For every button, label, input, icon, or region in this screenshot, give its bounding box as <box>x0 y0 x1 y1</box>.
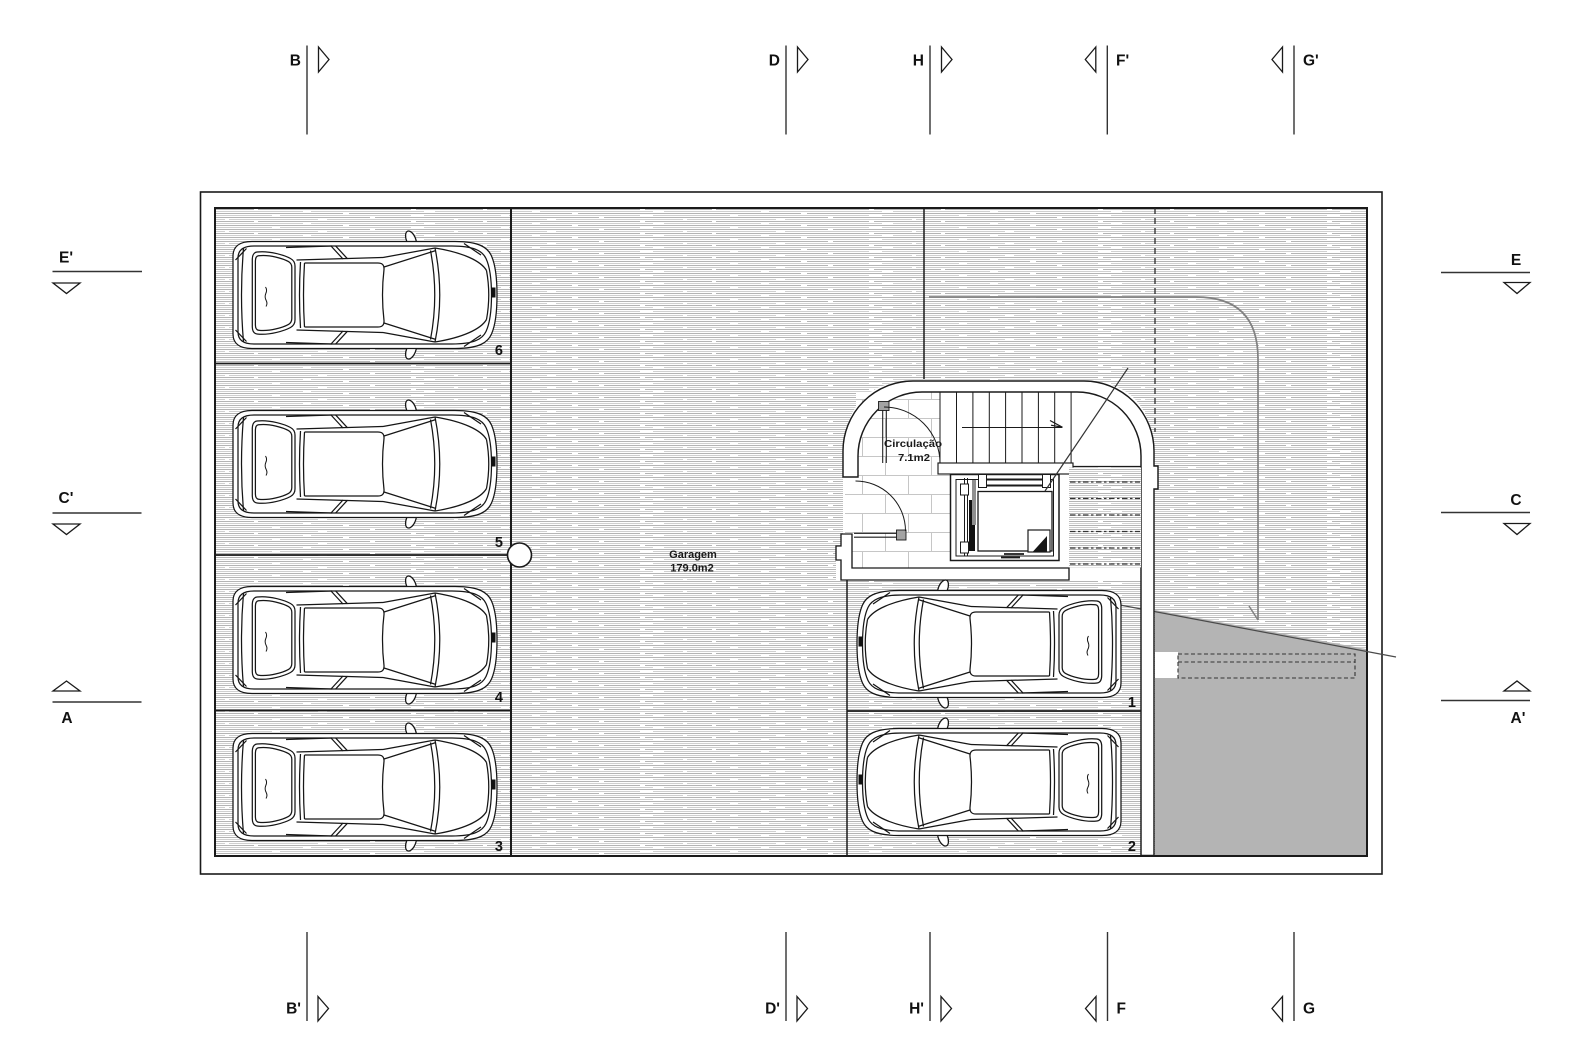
svg-text:D': D' <box>765 1001 780 1018</box>
svg-text:A': A' <box>1511 710 1526 727</box>
svg-text:H: H <box>913 53 924 70</box>
svg-text:B: B <box>290 53 301 70</box>
svg-text:Circulação: Circulação <box>884 439 942 450</box>
svg-text:5: 5 <box>495 535 503 551</box>
svg-text:D: D <box>769 53 780 70</box>
svg-text:4: 4 <box>495 690 503 706</box>
svg-text:2: 2 <box>1128 839 1136 855</box>
svg-text:C': C' <box>59 490 74 507</box>
svg-text:A: A <box>61 710 72 727</box>
svg-text:H': H' <box>909 1001 924 1018</box>
svg-text:C: C <box>1510 492 1521 509</box>
svg-text:E: E <box>1511 252 1521 269</box>
svg-text:G: G <box>1303 1001 1315 1018</box>
svg-text:E': E' <box>59 250 73 267</box>
svg-text:Garagem: Garagem <box>669 549 717 561</box>
svg-text:1: 1 <box>1128 695 1136 711</box>
svg-text:6: 6 <box>495 343 503 359</box>
svg-text:F': F' <box>1116 53 1129 70</box>
svg-text:179.0m2: 179.0m2 <box>670 563 713 575</box>
svg-text:3: 3 <box>495 839 503 855</box>
svg-text:B': B' <box>286 1001 301 1018</box>
svg-text:7.1m2: 7.1m2 <box>898 453 930 464</box>
svg-text:G': G' <box>1303 53 1319 70</box>
svg-text:F: F <box>1117 1001 1126 1018</box>
